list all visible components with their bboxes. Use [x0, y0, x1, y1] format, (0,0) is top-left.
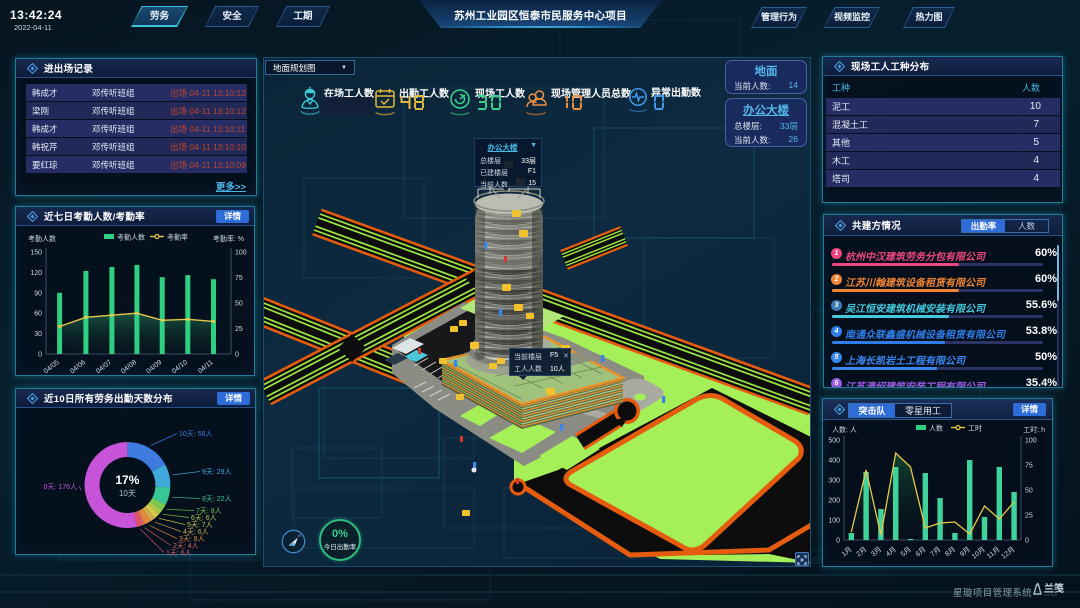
svg-text:5月: 5月	[899, 545, 913, 558]
svg-text:04/09: 04/09	[145, 359, 163, 375]
svg-text:6天: 6人: 6天: 6人	[191, 514, 217, 522]
svg-text:100: 100	[235, 250, 247, 257]
svg-text:90: 90	[34, 290, 42, 297]
svg-text:04/07: 04/07	[95, 359, 113, 375]
svg-text:10天: 10天	[119, 489, 136, 498]
svg-text:100: 100	[1025, 438, 1037, 445]
svg-text:6月: 6月	[914, 545, 928, 558]
svg-text:04/05: 04/05	[43, 359, 61, 375]
svg-text:0: 0	[1025, 538, 1029, 545]
svg-text:考勤人数: 考勤人数	[28, 234, 56, 243]
svg-text:50: 50	[235, 301, 243, 308]
svg-text:0: 0	[38, 352, 42, 359]
svg-text:7天: 8人: 7天: 8人	[196, 507, 222, 515]
svg-text:工时: h: 工时: h	[1023, 425, 1045, 434]
svg-text:人数: 人: 人数: 人	[832, 425, 857, 434]
svg-text:60: 60	[34, 311, 42, 318]
svg-text:8月: 8月	[944, 545, 958, 558]
svg-text:300: 300	[828, 478, 840, 485]
svg-text:3月: 3月	[870, 545, 884, 558]
svg-text:11月: 11月	[985, 545, 1001, 560]
svg-text:3天: 8人: 3天: 8人	[179, 535, 205, 543]
svg-text:10天: 56人: 10天: 56人	[179, 430, 212, 438]
svg-text:04/11: 04/11	[197, 359, 215, 375]
svg-text:7月: 7月	[929, 545, 943, 558]
svg-text:5天: 7人: 5天: 7人	[187, 521, 213, 529]
svg-text:04/06: 04/06	[69, 359, 87, 375]
svg-text:9月: 9月	[958, 545, 972, 558]
svg-text:04/08: 04/08	[120, 359, 138, 375]
svg-text:75: 75	[235, 275, 243, 282]
svg-text:2月: 2月	[855, 545, 869, 558]
svg-text:4天: 6人: 4天: 6人	[183, 528, 209, 536]
svg-text:考勤率: %: 考勤率: %	[213, 234, 244, 243]
svg-text:50: 50	[1025, 488, 1033, 495]
svg-text:N: N	[298, 533, 301, 538]
svg-text:工时: 工时	[968, 424, 982, 433]
svg-text:4月: 4月	[884, 545, 898, 558]
svg-text:04/10: 04/10	[171, 359, 189, 375]
svg-text:0: 0	[836, 538, 840, 545]
svg-text:120: 120	[30, 270, 42, 277]
svg-text:考勤人数: 考勤人数	[117, 233, 145, 242]
svg-text:2天: 4人: 2天: 4人	[173, 542, 199, 550]
svg-text:75: 75	[1025, 463, 1033, 470]
svg-text:考勤率: 考勤率	[167, 233, 188, 242]
svg-text:30: 30	[34, 331, 42, 338]
svg-text:1月: 1月	[840, 545, 854, 558]
svg-text:10月: 10月	[970, 545, 987, 560]
svg-text:0天: 176人: 0天: 176人	[44, 483, 77, 491]
svg-text:150: 150	[30, 250, 42, 257]
svg-text:12月: 12月	[1000, 545, 1017, 560]
svg-text:9天: 29人: 9天: 29人	[202, 468, 232, 476]
svg-text:400: 400	[828, 458, 840, 465]
svg-text:人数: 人数	[929, 424, 943, 433]
svg-text:200: 200	[828, 498, 840, 505]
svg-text:1天: 6人: 1天: 6人	[166, 549, 192, 556]
svg-text:0: 0	[235, 352, 239, 359]
svg-text:25: 25	[1025, 513, 1033, 520]
svg-text:100: 100	[828, 518, 840, 525]
svg-text:25: 25	[235, 326, 243, 333]
svg-text:8天: 22人: 8天: 22人	[202, 495, 232, 503]
svg-text:500: 500	[828, 438, 840, 445]
svg-text:17%: 17%	[115, 473, 139, 487]
svg-text:LAN JIAN: LAN JIAN	[1044, 593, 1057, 597]
